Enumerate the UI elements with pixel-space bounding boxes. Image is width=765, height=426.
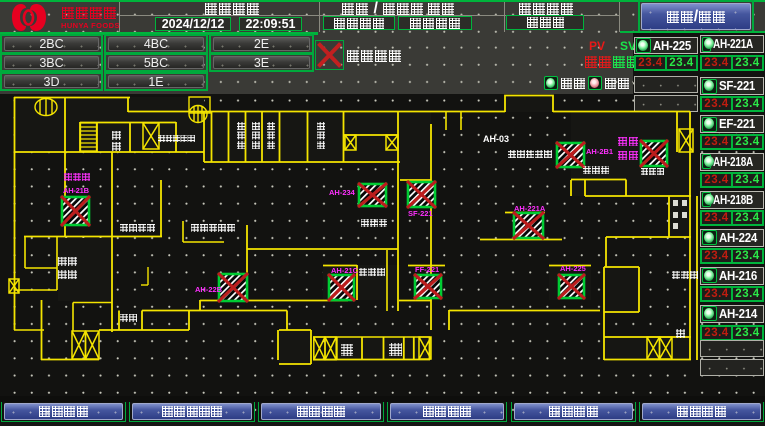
svg-text:AH-03: AH-03 — [483, 134, 509, 144]
svg-text:AH-225: AH-225 — [560, 264, 586, 273]
svg-text:AH-234: AH-234 — [329, 188, 356, 197]
svg-text:AH-22B: AH-22B — [195, 285, 223, 294]
svg-text:AH-2B1: AH-2B1 — [586, 147, 613, 156]
svg-text:SF-221: SF-221 — [408, 209, 433, 218]
svg-text:AH-21C: AH-21C — [331, 266, 359, 275]
svg-text:AH-221A: AH-221A — [514, 204, 546, 213]
svg-text:AH-21B: AH-21B — [63, 186, 90, 195]
svg-text:FF-221: FF-221 — [415, 265, 439, 274]
